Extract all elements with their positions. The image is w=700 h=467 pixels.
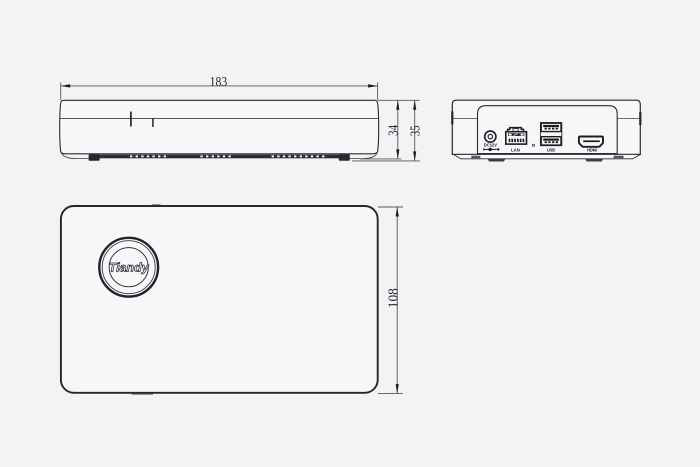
svg-text:108: 108 [386,288,401,308]
svg-text:LAN: LAN [511,147,520,152]
svg-text:DC12V: DC12V [484,143,497,148]
svg-text:35: 35 [409,126,424,137]
svg-text:HDMI: HDMI [587,147,597,152]
svg-text:USB: USB [547,147,555,152]
svg-text:183: 183 [210,75,228,90]
svg-text:Tiandy: Tiandy [109,260,150,274]
svg-text:34: 34 [387,125,402,136]
